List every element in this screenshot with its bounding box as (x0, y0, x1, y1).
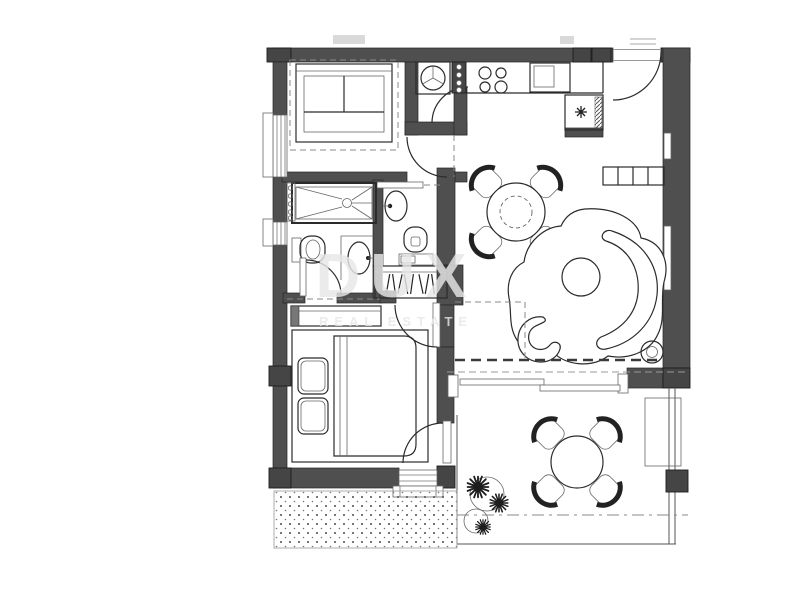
left-window-bath (263, 219, 287, 246)
hangers-icon (386, 274, 440, 294)
floor-plan-canvas: DUX REAL ESTATE (0, 0, 803, 602)
terrace-table (551, 436, 603, 488)
left-window-upper (263, 113, 287, 177)
bedroom2-pocket-door (377, 182, 423, 188)
cooktop-burners-icon (479, 67, 507, 93)
bed-small (296, 64, 392, 142)
bedroom1 (287, 299, 451, 463)
gravel-strip (274, 491, 457, 548)
sliding-door (448, 374, 628, 397)
dining-table (487, 183, 545, 241)
bidet-icon (292, 236, 325, 263)
bedroom-door (395, 303, 440, 347)
gas-strip (452, 62, 466, 93)
kitchen-counter (467, 62, 603, 93)
double-bed (292, 330, 428, 462)
plants (464, 477, 508, 535)
exterior-roof-ticks (333, 35, 656, 44)
towel-radiator-icon (286, 183, 295, 221)
planter (645, 398, 681, 466)
vanity-sink (341, 236, 374, 280)
dresser (291, 306, 381, 326)
wc-shelf (399, 254, 433, 265)
floor-plan-drawing (0, 0, 803, 602)
wc-room (383, 191, 433, 265)
sideboard (603, 167, 664, 185)
entry-door (613, 50, 661, 101)
bathroom (286, 183, 376, 296)
washing-machine-icon (421, 66, 445, 90)
railing-column (666, 470, 688, 492)
terrace-dining-set (528, 413, 627, 512)
toilet-icon (404, 227, 427, 252)
bathroom-door (300, 258, 341, 296)
kitchen-sink-icon (530, 63, 570, 92)
washbasin-icon (383, 191, 407, 221)
wardrobe (375, 266, 447, 298)
shower (292, 183, 376, 223)
refrigerator-icon (565, 95, 603, 130)
terrace-door-from-bedroom (403, 421, 451, 463)
